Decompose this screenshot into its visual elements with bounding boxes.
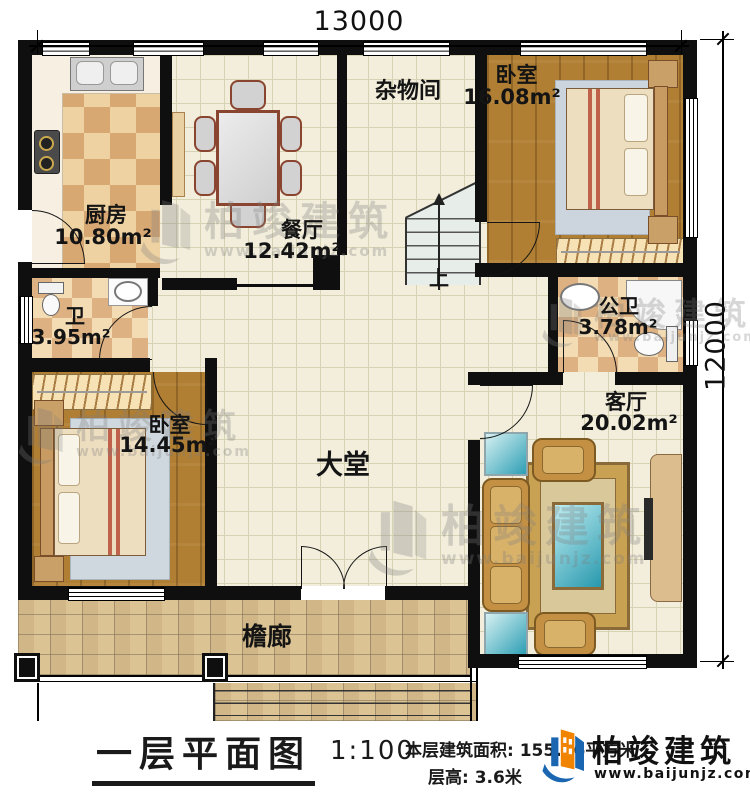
living-label: 客厅: [588, 391, 664, 413]
tv-cabinet: [650, 454, 682, 602]
kitchen-sink-basin-right: [110, 61, 138, 85]
stove-burner-top: [39, 136, 54, 151]
wall-bathroom-bottom: [18, 358, 150, 372]
tv-icon: [644, 498, 653, 560]
veranda-edge-line: [18, 675, 470, 677]
window-dining-top-right: [263, 41, 319, 56]
bedroom-bl-headboard: [40, 428, 54, 556]
bedroom-tr-headboard: [654, 86, 668, 216]
window-bedroom-bl-bottom: [68, 587, 165, 601]
wall-kitchen-bottom: [32, 268, 160, 278]
dimension-top-line: [29, 45, 689, 47]
veranda-column-middle: [202, 653, 228, 682]
bedroom-bl-pillow2: [58, 492, 80, 544]
brand-company-name: 柏竣建筑: [592, 726, 736, 771]
bedroom-tr-pillow1: [624, 94, 648, 142]
dimension-top-value: 13000: [299, 6, 419, 37]
wall-living-left: [468, 440, 480, 654]
dimension-right-value: 12000: [701, 281, 732, 411]
coffee-table: [552, 502, 604, 590]
dimension-extension: [700, 39, 734, 40]
sofa-cushion2: [490, 526, 522, 564]
dining-area-label: 12.42m²: [242, 240, 342, 262]
bedroom-tr-blanket-stripe1: [588, 89, 592, 209]
public-bath-label: 公卫: [574, 296, 664, 317]
bedroom-bl-nightstand-top: [34, 400, 64, 426]
armchair-bottom-cushion: [544, 620, 586, 648]
public-bath-area-label: 3.78m²: [568, 317, 668, 338]
step-rail-right-a: [470, 668, 472, 721]
storage-label: 杂物间: [351, 80, 465, 103]
plan-scale: 1:100: [330, 736, 415, 766]
stove-burner-bottom: [39, 156, 54, 171]
brand-website: www.baijunjz.com: [594, 766, 750, 782]
living-area-label: 20.02m²: [579, 412, 679, 434]
window-storage-top: [363, 41, 450, 56]
wall-left-a: [18, 55, 32, 210]
main-hall-label: 大堂: [303, 452, 383, 480]
window-living-bottom: [518, 655, 647, 669]
dining-chair-left2: [194, 160, 216, 196]
entry-steps-lines: [215, 690, 472, 716]
veranda-edge-line2: [18, 681, 476, 682]
wall-living-top-b: [615, 372, 683, 385]
veranda-column-left: [14, 653, 40, 682]
bedroom-tr-nightstand-top: [648, 60, 678, 88]
wall-public-bath-left: [548, 277, 558, 385]
dimension-extension: [700, 661, 734, 662]
wall-dining-threshold: [237, 284, 313, 287]
armchair-top-cushion: [542, 446, 584, 474]
dimension-extension: [681, 30, 682, 54]
brand-logo-icon: [540, 720, 588, 790]
bathroom-label: 卫: [58, 306, 92, 327]
plan-title: 一层平面图: [92, 725, 315, 786]
dining-chair-top: [230, 80, 266, 110]
kitchen-door-opening: [18, 210, 32, 262]
wall-bathroom-right: [148, 278, 158, 306]
kitchen-sink-basin-left: [76, 61, 104, 85]
wall-dining-bottom: [162, 278, 237, 290]
window-bedroom-tr-top: [520, 41, 647, 56]
dining-chair-right2: [280, 160, 302, 196]
window-dining-top-left: [133, 41, 204, 56]
wall-kitchen-dining: [160, 55, 172, 205]
step-rail-right-b: [476, 668, 478, 721]
window-bedroom-tr-right: [684, 98, 698, 238]
floor-plan-canvas: 柏竣建筑 www.baijunjz.com 柏竣建筑 www.baijunjz.…: [0, 0, 750, 798]
window-public-bath-right: [684, 320, 698, 366]
bedroom-tr-blanket-stripe2: [596, 89, 600, 209]
step-rail-left: [37, 683, 39, 721]
bedroom-bl-nightstand-bottom: [34, 556, 64, 582]
side-table-top: [484, 432, 528, 476]
sofa-cushion1: [490, 486, 522, 524]
kitchen-area-label: 10.80m²: [53, 226, 153, 248]
dining-chair-left1: [194, 116, 216, 152]
bedroom-bl-area-label: 14.45m²: [118, 434, 218, 456]
wall-living-top-a: [480, 372, 563, 385]
dining-table: [216, 110, 280, 206]
bathroom-area-label: 3.95m²: [21, 327, 121, 348]
dining-label: 餐厅: [264, 219, 340, 241]
dining-chair-right1: [280, 116, 302, 152]
bedroom-tr-label: 卧室: [479, 64, 554, 86]
bedroom-tr-pillow2: [624, 148, 648, 196]
dining-cabinet: [172, 112, 185, 197]
wall-living-left-stub: [468, 372, 480, 385]
bedroom-tr-nightstand-bottom: [648, 216, 678, 244]
dimension-extension: [37, 30, 38, 54]
bathroom-sink-icon: [114, 281, 142, 302]
toilet-tank-icon: [38, 282, 64, 294]
wall-bottom-left-b: [385, 586, 480, 600]
side-table-bottom: [484, 612, 528, 656]
stairs-up-label: 上: [424, 268, 454, 289]
veranda-label: 檐廊: [227, 624, 307, 650]
bedroom-tr-area-label: 16.08m²: [462, 86, 562, 108]
wall-hall-bedroom-tr-stub: [475, 263, 487, 277]
bedroom-bl-blanket-stripe1: [108, 429, 112, 555]
sofa-cushion3: [490, 566, 522, 604]
window-kitchen-top: [42, 41, 90, 56]
floor-height-text: 层高: 3.6米: [428, 763, 522, 788]
bedroom-bl-pillow1: [58, 434, 80, 486]
stair-arrow-head: [433, 193, 445, 205]
kitchen-label: 厨房: [68, 204, 144, 226]
